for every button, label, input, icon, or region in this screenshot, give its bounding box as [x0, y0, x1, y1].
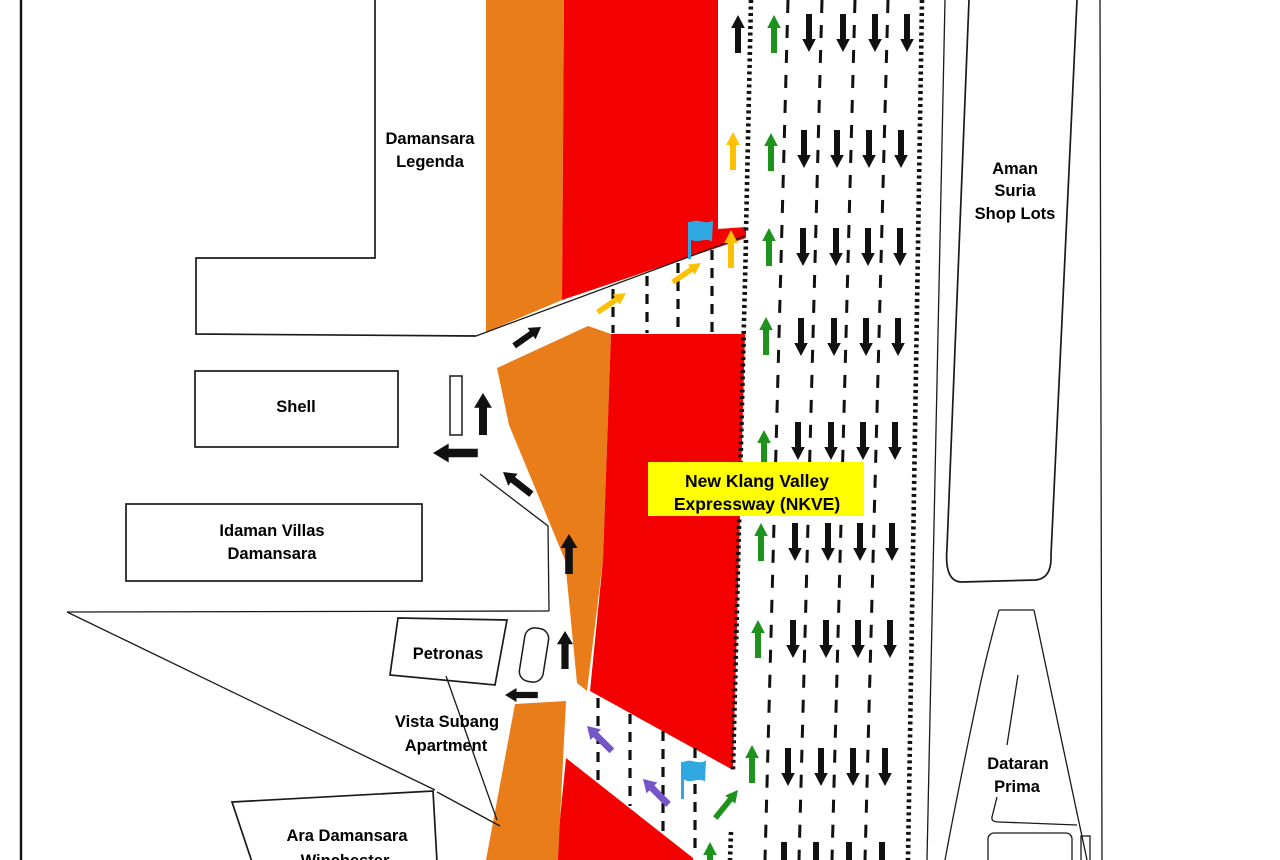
idaman-villas-block — [126, 504, 422, 581]
wedge-diagonal-edge — [67, 612, 435, 790]
closure-red-north — [562, 0, 746, 300]
down-arrow — [777, 842, 791, 860]
west-side-blocks — [126, 371, 550, 860]
lane-divider-line — [865, 0, 888, 860]
dataran-prima-lot — [988, 833, 1072, 860]
down-arrow — [814, 748, 828, 786]
lane-divider-line — [832, 0, 855, 860]
label-dataran-prima: Dataran — [987, 755, 1048, 773]
down-arrow — [788, 523, 802, 561]
label-aman-suria: Suria — [994, 182, 1036, 200]
down-arrow — [861, 228, 875, 266]
down-arrow — [893, 228, 907, 266]
work-zone-orange-north — [486, 0, 564, 332]
down-arrow — [894, 130, 908, 168]
contraflow-arrow-green — [754, 523, 768, 561]
lane-divider-line — [765, 0, 788, 860]
traffic-island-petronas — [518, 626, 550, 683]
east-side-blocks — [927, 0, 1102, 860]
label-aman-suria: Aman — [992, 160, 1038, 178]
dataran-prima-inner-line — [1007, 675, 1018, 745]
wedge-diagonal-edge-2 — [437, 792, 500, 826]
label-damansara-legenda: Legenda — [396, 153, 465, 171]
down-arrow — [809, 842, 823, 860]
down-arrow — [802, 14, 816, 52]
closure-red-middle — [590, 334, 745, 770]
down-arrow — [846, 748, 860, 786]
contraflow-arrow-green — [751, 620, 765, 658]
down-arrow — [883, 620, 897, 658]
dataran-prima-block-right — [1034, 610, 1087, 860]
contraflow-arrow-green — [767, 15, 781, 53]
up-arrow-black — [731, 15, 745, 53]
down-arrow — [842, 842, 856, 860]
southbound-down-arrows — [777, 14, 914, 860]
merge-arrow-yellow — [726, 132, 740, 170]
closure-red-south — [556, 758, 693, 860]
local-up-arrow — [474, 393, 492, 435]
down-arrow — [786, 620, 800, 658]
exit-arrow-purple — [582, 721, 617, 756]
down-arrow — [868, 14, 882, 52]
nkve-label-line1: New Klang Valley — [685, 471, 829, 491]
down-arrow — [859, 318, 873, 356]
label-dataran-prima: Prima — [994, 778, 1041, 796]
contraflow-arrow-green — [745, 745, 759, 783]
down-arrow — [824, 422, 838, 460]
contraflow-separator — [746, 0, 751, 232]
down-arrow — [821, 523, 835, 561]
down-arrow — [781, 748, 795, 786]
label-aman-suria: Shop Lots — [975, 205, 1056, 223]
closure-zones — [486, 0, 746, 860]
local-left-arrow — [505, 688, 538, 702]
label-vista-subang: Vista Subang — [395, 713, 499, 731]
dataran-prima-inner-divider — [992, 797, 1077, 825]
down-arrow — [856, 422, 870, 460]
down-arrow — [853, 523, 867, 561]
label-damansara-legenda: Damansara — [386, 130, 476, 148]
expressway-right-edge — [908, 0, 922, 860]
down-arrow — [827, 318, 841, 356]
nkve-label-callout: New Klang Valley Expressway (NKVE) — [648, 462, 864, 516]
service-road-outer-line — [1100, 0, 1102, 860]
lane-divider-line — [799, 0, 822, 860]
label-idaman-villas: Idaman Villas — [219, 522, 324, 540]
down-arrow — [797, 130, 811, 168]
down-arrow — [796, 228, 810, 266]
contraflow-separator — [730, 832, 731, 860]
down-arrow — [878, 748, 892, 786]
down-arrow — [875, 842, 889, 860]
down-arrow — [819, 620, 833, 658]
aman-suria-block — [947, 0, 1077, 582]
label-vista-subang: Apartment — [405, 737, 488, 755]
down-arrow — [791, 422, 805, 460]
work-zone-orange-middle — [497, 326, 611, 691]
down-arrow — [794, 318, 808, 356]
local-left-arrow — [433, 443, 478, 462]
label-ara-damansara: Winchester — [301, 852, 390, 860]
down-arrow — [851, 620, 865, 658]
label-shell: Shell — [276, 398, 315, 416]
traffic-diagram-canvas: New Klang Valley Expressway (NKVE) Daman… — [0, 0, 1280, 860]
ara-damansara-block — [232, 791, 437, 860]
label-idaman-villas: Damansara — [228, 545, 318, 563]
contraflow-arrow-green — [703, 842, 717, 860]
contraflow-entry-arrow-green — [710, 786, 743, 822]
down-arrow — [900, 14, 914, 52]
down-arrow — [862, 130, 876, 168]
onramp-black-arrow — [510, 321, 545, 351]
down-arrow — [891, 318, 905, 356]
down-arrow — [829, 228, 843, 266]
down-arrow — [888, 422, 902, 460]
nkve-contraflow-map: New Klang Valley Expressway (NKVE) Daman… — [0, 0, 1280, 860]
down-arrow — [885, 523, 899, 561]
down-arrow — [836, 14, 850, 52]
dataran-prima-block-left — [945, 610, 999, 860]
nkve-label-line2: Expressway (NKVE) — [674, 494, 840, 514]
contraflow-arrow-green — [764, 133, 778, 171]
label-ara-damansara: Ara Damansara — [286, 827, 408, 845]
contraflow-arrow-green — [762, 228, 776, 266]
exit-arrow-purple — [638, 774, 674, 810]
service-road-line — [927, 0, 945, 860]
traffic-island-shell — [450, 376, 462, 435]
wedge-top-edge — [67, 611, 549, 612]
contraflow-arrow-green — [759, 317, 773, 355]
local-up-arrow — [557, 631, 573, 669]
down-arrow — [830, 130, 844, 168]
label-petronas: Petronas — [413, 645, 484, 663]
